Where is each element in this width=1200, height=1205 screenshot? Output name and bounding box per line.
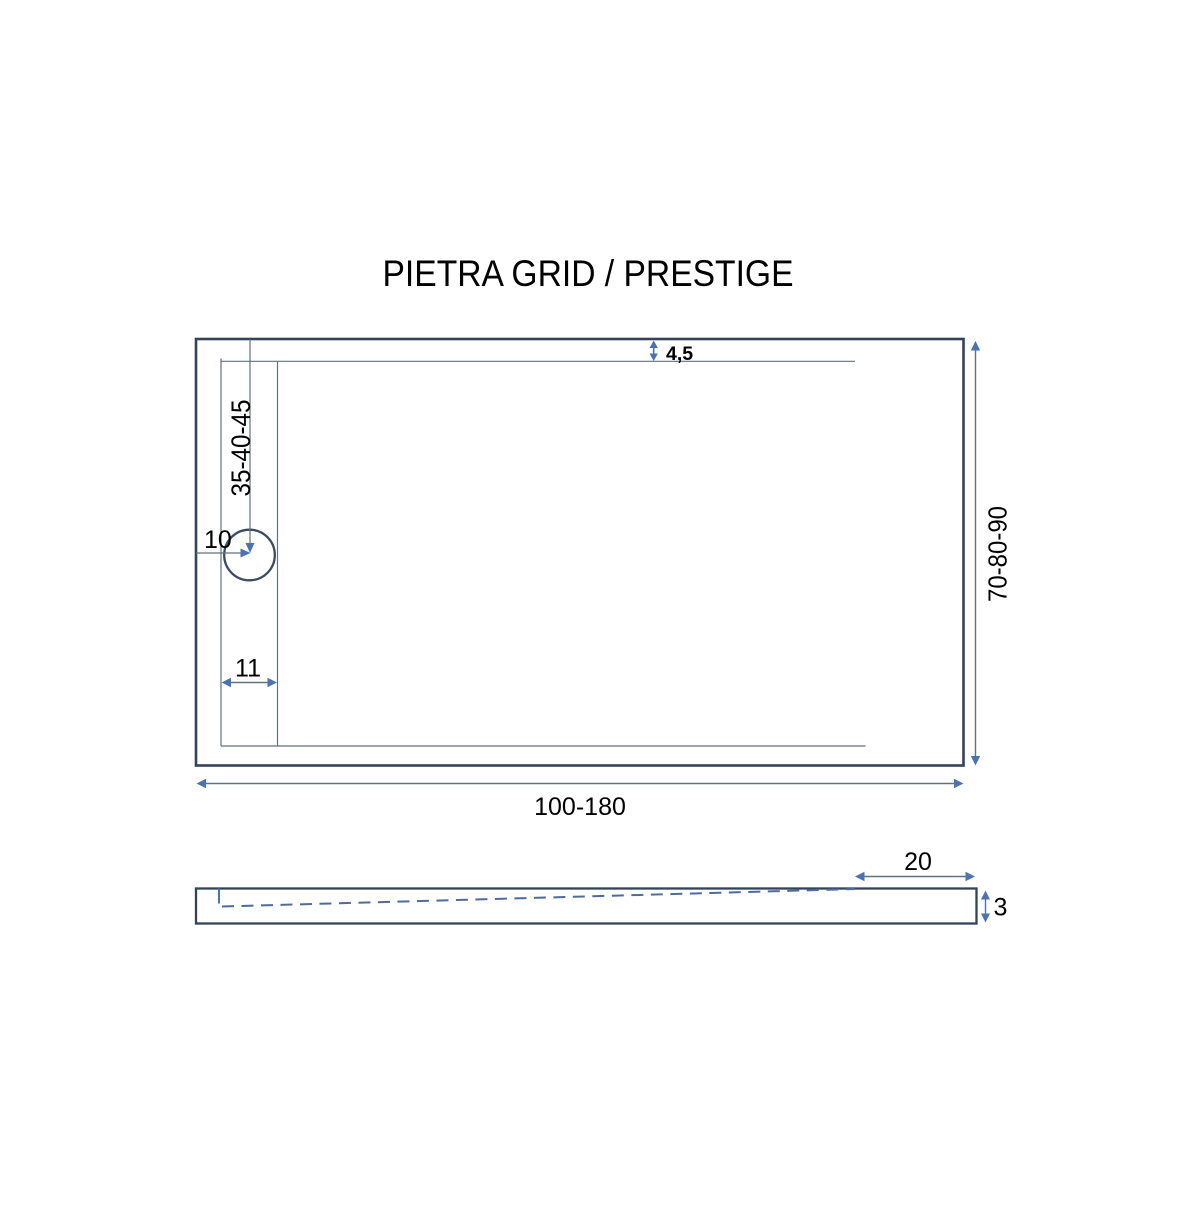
svg-text:3: 3 bbox=[994, 894, 1008, 922]
svg-text:4,5: 4,5 bbox=[666, 343, 693, 365]
svg-text:100-180: 100-180 bbox=[534, 793, 626, 821]
svg-text:11: 11 bbox=[235, 655, 261, 683]
svg-text:10: 10 bbox=[204, 526, 232, 554]
svg-text:20: 20 bbox=[904, 848, 932, 876]
svg-text:PIETRA GRID / PRESTIGE: PIETRA GRID / PRESTIGE bbox=[383, 253, 794, 294]
svg-text:35-40-45: 35-40-45 bbox=[226, 400, 256, 497]
svg-text:70-80-90: 70-80-90 bbox=[983, 506, 1013, 602]
